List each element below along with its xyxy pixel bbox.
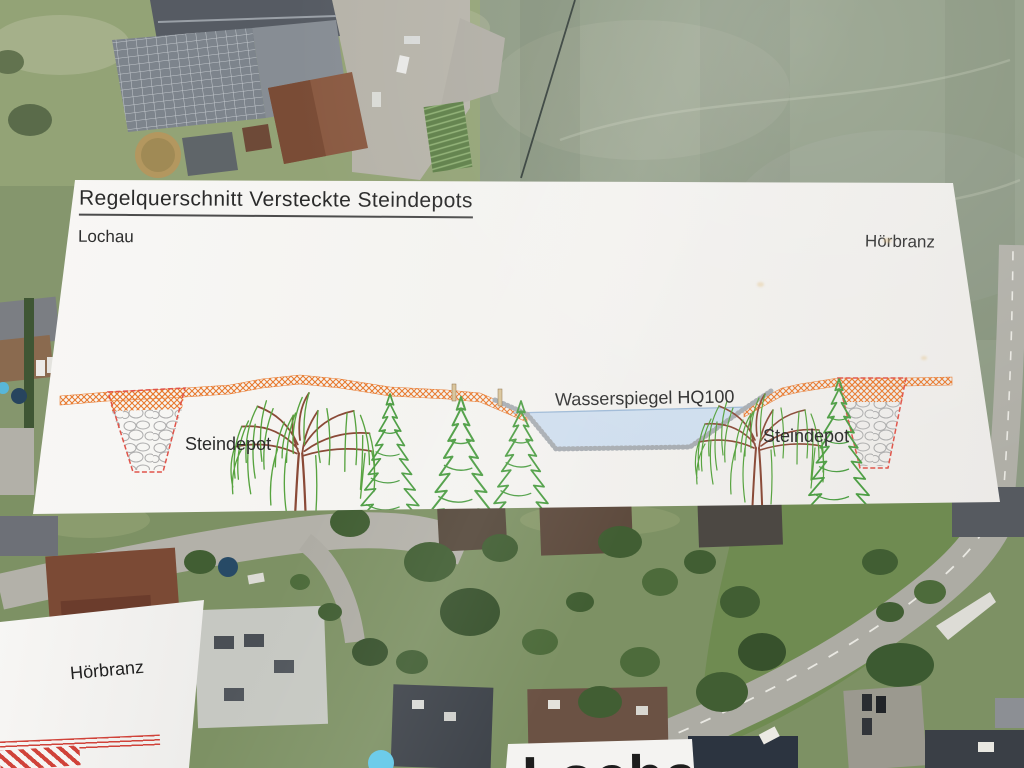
water-level-label: Wasserspiegel HQ100 (555, 386, 735, 410)
photo-of-sign-on-aerial-map: Regelquerschnitt Versteckte Steindepots … (0, 0, 1024, 768)
hoerbranz-sign-panel: Hörbranz (0, 598, 206, 768)
cross-section-sign-panel: Regelquerschnitt Versteckte Steindepots … (33, 178, 1000, 514)
cross-section-diagram (33, 178, 1000, 514)
conifer-tree-icon (420, 397, 502, 514)
stone-depot-left (108, 388, 185, 472)
label-lochau: Lochau (78, 227, 134, 247)
conifer-tree-icon (355, 394, 425, 514)
flat-roof-building (194, 606, 328, 728)
farm-buildings (0, 0, 505, 186)
stain-mark (883, 238, 892, 243)
traffic-island (866, 643, 934, 687)
stain-mark (757, 282, 764, 287)
sign-title: Regelquerschnitt Versteckte Steindepots (79, 187, 473, 219)
stone-depot-label-left: Steindepot (185, 434, 271, 455)
stone-depot-label-right: Steindepot (763, 426, 849, 447)
road-right-edge (1000, 245, 1013, 505)
label-hoerbranz: Hörbranz (865, 232, 935, 253)
stain-mark (921, 356, 927, 360)
lochau-large-label: Lochau (522, 742, 694, 768)
hoerbranz-label: Hörbranz (69, 657, 145, 684)
